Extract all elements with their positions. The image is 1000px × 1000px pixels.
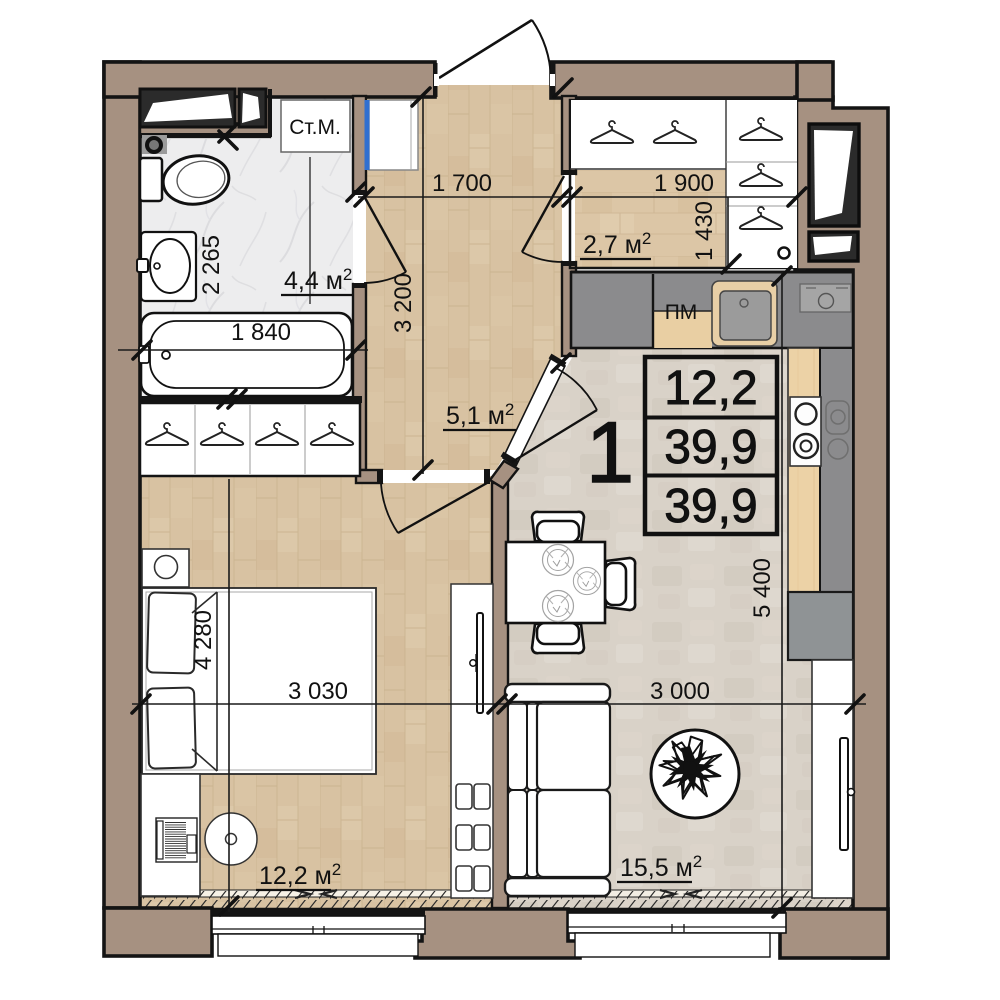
svg-text:5,1 м2: 5,1 м2 <box>446 400 514 430</box>
svg-text:15,5 м2: 15,5 м2 <box>620 852 702 882</box>
svg-text:Ст.М.: Ст.М. <box>289 116 341 139</box>
svg-text:1 840: 1 840 <box>231 319 291 346</box>
svg-text:1 430: 1 430 <box>691 201 718 261</box>
svg-text:1 700: 1 700 <box>432 170 492 197</box>
svg-text:39,9: 39,9 <box>664 480 757 533</box>
svg-text:3 200: 3 200 <box>390 273 417 333</box>
svg-text:4 280: 4 280 <box>190 610 217 670</box>
svg-text:39,9: 39,9 <box>664 421 757 474</box>
svg-text:ПМ: ПМ <box>665 301 698 324</box>
svg-text:3 030: 3 030 <box>288 678 348 705</box>
svg-text:12,2: 12,2 <box>664 362 757 415</box>
svg-text:1 900: 1 900 <box>654 170 714 197</box>
svg-text:2 265: 2 265 <box>198 235 225 295</box>
svg-text:12,2 м2: 12,2 м2 <box>259 860 341 890</box>
svg-text:5 400: 5 400 <box>749 558 776 618</box>
svg-text:2,7 м2: 2,7 м2 <box>583 229 651 259</box>
svg-text:1: 1 <box>586 405 634 501</box>
svg-text:4,4 м2: 4,4 м2 <box>284 265 352 295</box>
svg-text:3 000: 3 000 <box>650 678 710 705</box>
